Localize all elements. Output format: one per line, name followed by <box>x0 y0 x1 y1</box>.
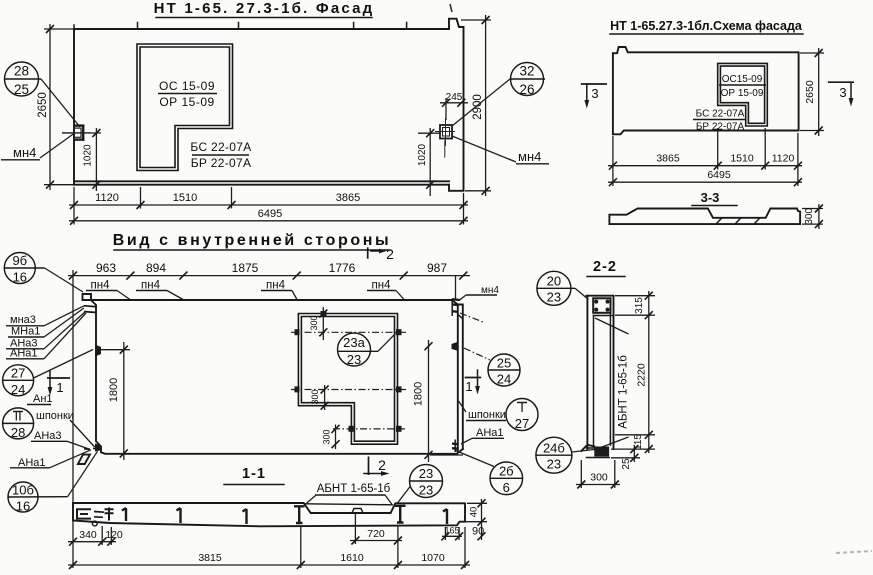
svg-text:Ан1: Ан1 <box>33 393 53 405</box>
svg-text:мн4: мн4 <box>13 145 36 160</box>
svg-text:300: 300 <box>309 315 319 330</box>
svg-text:ОР 15-09: ОР 15-09 <box>721 88 764 99</box>
svg-text:1-1: 1-1 <box>242 466 266 482</box>
svg-text:БР 22-07А: БР 22-07А <box>696 122 745 133</box>
svg-text:1: 1 <box>56 380 63 395</box>
svg-text:10б: 10б <box>12 483 34 498</box>
svg-text:1020: 1020 <box>417 143 428 166</box>
svg-text:БС 22-07А: БС 22-07А <box>190 140 251 154</box>
svg-text:28: 28 <box>14 64 29 79</box>
svg-text:1800: 1800 <box>108 378 120 402</box>
svg-text:26: 26 <box>519 82 534 97</box>
svg-text:720: 720 <box>367 528 385 540</box>
svg-text:23: 23 <box>547 457 561 472</box>
svg-text:300: 300 <box>322 429 332 444</box>
svg-text:90: 90 <box>472 526 484 538</box>
svg-text:НТ 1-65.27.3-1бл.Схема фасада: НТ 1-65.27.3-1бл.Схема фасада <box>610 19 803 33</box>
svg-text:пн4: пн4 <box>266 280 286 292</box>
svg-text:1776: 1776 <box>329 261 356 275</box>
svg-text:25: 25 <box>14 82 29 97</box>
svg-text:23: 23 <box>419 466 433 481</box>
svg-text:2650: 2650 <box>37 92 49 118</box>
svg-text:3: 3 <box>839 85 846 100</box>
svg-text:27: 27 <box>515 416 529 431</box>
svg-text:2б: 2б <box>499 464 514 479</box>
svg-text:16: 16 <box>13 270 27 285</box>
svg-text:25: 25 <box>621 458 632 470</box>
svg-text:1800: 1800 <box>413 382 425 406</box>
svg-text:1610: 1610 <box>340 552 364 564</box>
svg-text:1875: 1875 <box>232 261 259 275</box>
svg-text:20: 20 <box>547 274 561 289</box>
svg-text:3-3: 3-3 <box>701 190 720 205</box>
svg-text:3865: 3865 <box>336 192 360 204</box>
svg-text:23: 23 <box>347 352 361 367</box>
svg-text:300: 300 <box>804 208 815 225</box>
svg-text:987: 987 <box>427 261 447 275</box>
svg-text:3815: 3815 <box>198 552 222 564</box>
svg-text:6495: 6495 <box>707 169 731 181</box>
svg-text:23: 23 <box>419 483 433 498</box>
svg-text:300: 300 <box>310 389 320 404</box>
svg-text:шпонки: шпонки <box>468 409 506 421</box>
svg-text:1: 1 <box>465 379 472 394</box>
svg-text:1510: 1510 <box>730 153 754 165</box>
svg-text:БС 22-07А: БС 22-07А <box>696 109 745 120</box>
svg-text:300: 300 <box>590 472 608 484</box>
svg-text:340: 340 <box>79 529 97 541</box>
svg-text:6495: 6495 <box>258 208 282 220</box>
svg-text:3865: 3865 <box>656 153 680 165</box>
svg-text:2: 2 <box>378 457 386 473</box>
svg-text:9б: 9б <box>12 253 27 268</box>
svg-text:пн4: пн4 <box>372 280 392 292</box>
svg-text:НТ 1-65. 27.3-1б. Фасад: НТ 1-65. 27.3-1б. Фасад <box>154 0 375 17</box>
svg-text:115: 115 <box>633 434 644 450</box>
svg-text:24б: 24б <box>543 441 565 456</box>
svg-text:ОР 15-09: ОР 15-09 <box>159 95 214 109</box>
svg-text:пн4: пн4 <box>141 280 161 292</box>
svg-text:25: 25 <box>497 356 511 371</box>
svg-text:2220: 2220 <box>636 363 648 387</box>
svg-text:3: 3 <box>591 86 598 101</box>
svg-text:АНа1: АНа1 <box>476 427 504 439</box>
svg-text:1120: 1120 <box>95 192 119 204</box>
svg-text:963: 963 <box>96 261 116 275</box>
svg-text:27: 27 <box>11 366 25 381</box>
svg-text:28: 28 <box>11 425 25 440</box>
svg-text:24: 24 <box>497 372 511 387</box>
svg-text:АНа1: АНа1 <box>10 348 38 360</box>
svg-text:пн4: пн4 <box>91 280 111 292</box>
svg-text:Вид с внутренней стороны: Вид с внутренней стороны <box>113 232 392 249</box>
svg-text:1120: 1120 <box>772 153 795 165</box>
svg-text:шпонки: шпонки <box>36 410 74 422</box>
svg-text:МНа1: МНа1 <box>11 326 40 338</box>
svg-text:32: 32 <box>519 64 534 79</box>
svg-text:40: 40 <box>469 507 480 518</box>
svg-text:23: 23 <box>547 290 561 305</box>
svg-text:1510: 1510 <box>173 192 197 204</box>
svg-text:315: 315 <box>634 297 645 314</box>
svg-text:2650: 2650 <box>804 80 816 104</box>
svg-text:II: II <box>14 409 21 424</box>
svg-text:6: 6 <box>503 480 510 495</box>
svg-text:120: 120 <box>105 529 123 541</box>
svg-text:ОС15-09: ОС15-09 <box>722 74 763 85</box>
svg-text:16: 16 <box>16 499 30 514</box>
svg-text:24: 24 <box>11 382 25 397</box>
svg-text:АНа3: АНа3 <box>34 430 62 442</box>
svg-text:1070: 1070 <box>421 552 445 564</box>
svg-text:2-2: 2-2 <box>593 259 617 275</box>
svg-text:АБНТ 1-65-1б: АБНТ 1-65-1б <box>618 355 630 429</box>
svg-text:1020: 1020 <box>83 144 94 167</box>
svg-text:АБНТ 1-65-1б: АБНТ 1-65-1б <box>317 483 391 495</box>
svg-text:2: 2 <box>386 246 394 262</box>
svg-text:894: 894 <box>146 261 166 275</box>
svg-text:мна3: мна3 <box>10 314 36 326</box>
svg-text:мн4: мн4 <box>518 149 541 164</box>
svg-text:2900: 2900 <box>472 94 484 120</box>
svg-text:23а: 23а <box>343 335 365 350</box>
svg-text:ОС 15-09: ОС 15-09 <box>159 79 215 93</box>
svg-text:165: 165 <box>444 526 459 536</box>
svg-text:БР 22-07А: БР 22-07А <box>191 156 252 170</box>
